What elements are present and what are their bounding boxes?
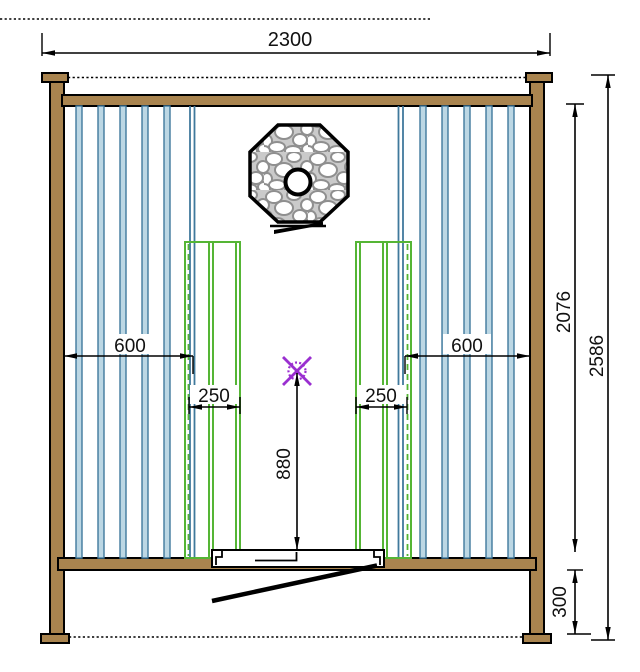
dimension-label-880: 880: [274, 448, 295, 480]
dimension-frame-2076: 2076: [554, 104, 584, 552]
wall-slat: [420, 106, 426, 558]
wall-slat: [464, 106, 470, 558]
wall-slat: [442, 106, 448, 558]
post-cap-left: [42, 73, 68, 82]
wall-slat: [76, 106, 82, 558]
post-cap-right: [526, 73, 552, 82]
post-foot-left: [41, 634, 69, 643]
technical-drawing-canvas: 2300 600 250 600 250 880 2076 2586: [0, 0, 640, 672]
door-threshold: [212, 550, 384, 567]
dimension-label-600-right: 600: [451, 336, 483, 357]
wall-slat: [486, 106, 492, 558]
dimension-label-250-right: 250: [365, 386, 397, 407]
dimension-label-300: 300: [550, 586, 571, 618]
wall-slat: [120, 106, 126, 558]
wall-slats-right: [399, 106, 515, 558]
dimension-label-2076: 2076: [554, 291, 575, 333]
dimension-total-2586: 2586: [587, 75, 615, 640]
dimension-left-600: 600: [64, 336, 193, 374]
dimension-overall-width: 2300: [42, 29, 550, 56]
wall-slats-left: [76, 106, 195, 558]
post-left: [50, 82, 64, 634]
post-foot-right: [523, 634, 551, 643]
dimension-lamp-880: 880: [274, 373, 297, 550]
wall-slat: [98, 106, 104, 558]
dimension-label-2586: 2586: [587, 335, 608, 377]
wall-slat: [164, 106, 170, 558]
sauna-section-drawing: 2300 600 250 600 250 880 2076 2586: [0, 0, 640, 672]
stove-chimney-ring: [286, 170, 311, 195]
wall-slat: [508, 106, 514, 558]
dimension-label-600-left: 600: [114, 336, 146, 357]
dimension-label-250-left: 250: [198, 386, 230, 407]
beam-top: [62, 95, 532, 106]
stove-handle: [274, 222, 323, 234]
dimension-label-2300: 2300: [268, 29, 313, 51]
post-right: [530, 82, 544, 634]
stove-top-view: [250, 125, 348, 234]
wall-slat: [142, 106, 148, 558]
door: [212, 550, 384, 601]
dimension-base-300: 300: [550, 570, 591, 634]
